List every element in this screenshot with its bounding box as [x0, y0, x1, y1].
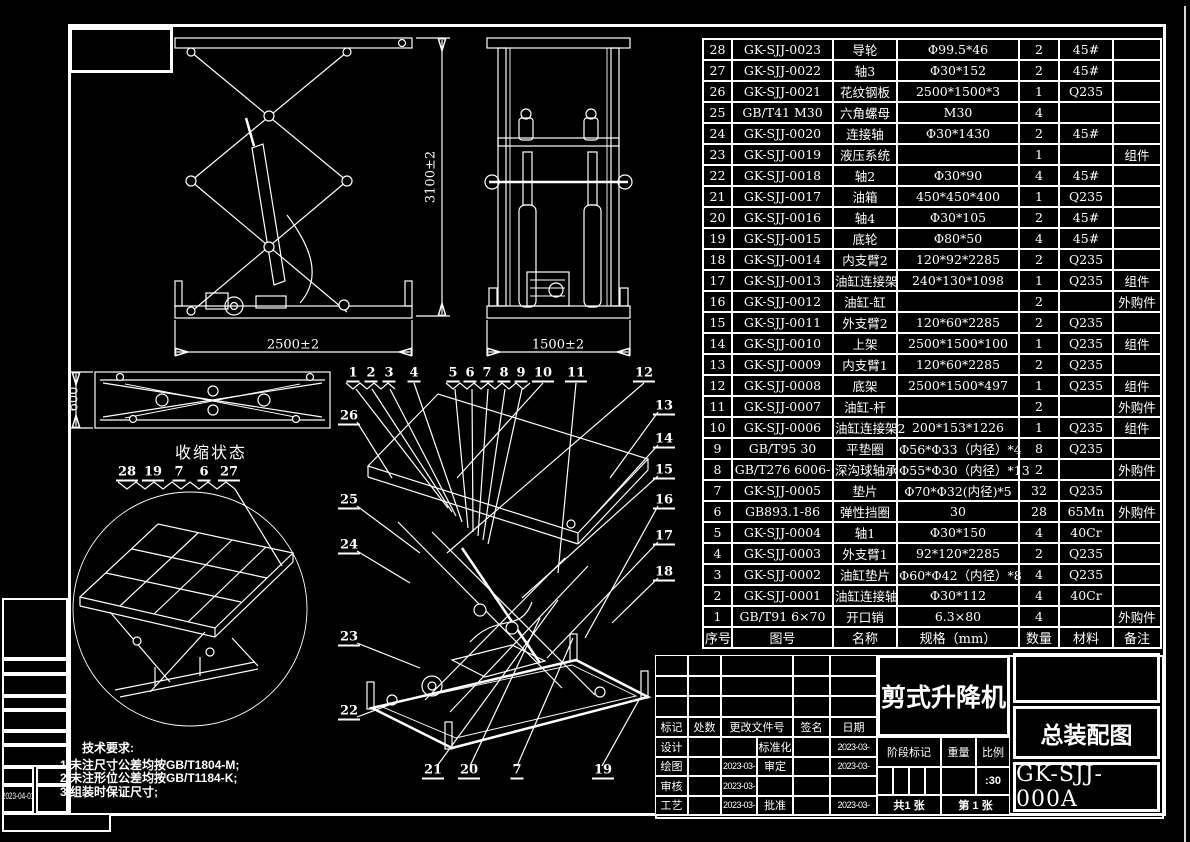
balloon-23: 23 [338, 632, 360, 647]
bom-cell [1113, 228, 1161, 249]
rev-header-count: 处数 [688, 717, 721, 737]
bom-cell: 4 [1019, 585, 1059, 606]
bom-cell [1113, 165, 1161, 186]
bom-header-cell: 图号 [732, 627, 833, 648]
bom-cell: M30 [897, 102, 1019, 123]
bom-cell: GK-SJJ-0001 [732, 585, 833, 606]
bom-cell: 11 [703, 396, 732, 417]
bom-cell: GB/T95 30 [732, 438, 833, 459]
table-row: 9GB/T95 30平垫圈Φ56*Φ33（内径）*48Q235 [703, 438, 1161, 459]
bom-cell: GK-SJJ-0009 [732, 354, 833, 375]
bom-cell: 油箱 [833, 186, 897, 207]
bom-cell: 2 [703, 585, 732, 606]
bom-cell: 4 [1019, 522, 1059, 543]
bom-cell: GK-SJJ-0013 [732, 270, 833, 291]
table-row: 17GK-SJJ-0013油缸连接架240*130*10981Q235组件 [703, 270, 1161, 291]
table-row: 22GK-SJJ-0018轴2Φ30*90445# [703, 165, 1161, 186]
stage-mark-label: 阶段标记 [877, 737, 941, 767]
bom-cell: 2500*1500*100 [897, 333, 1019, 354]
bom-cell: 组件 [1113, 333, 1161, 354]
tech-line: 1.未注尺寸公差均按GB/T1804-M; [60, 759, 310, 773]
bom-cell: 弹性挡圈 [833, 501, 897, 522]
bom-cell: 2 [1019, 249, 1059, 270]
balloon-15: 15 [653, 465, 675, 480]
bom-cell: 1 [1019, 270, 1059, 291]
bom-cell: Φ80*50 [897, 228, 1019, 249]
bom-cell: GK-SJJ-0006 [732, 417, 833, 438]
bom-cell: 45# [1059, 39, 1113, 60]
table-row: 12GK-SJJ-0008底架2500*1500*4971Q235组件 [703, 375, 1161, 396]
doc-type: 总装配图 [1041, 716, 1133, 750]
bom-cell: Φ30*1430 [897, 123, 1019, 144]
bom-cell: 5 [703, 522, 732, 543]
bom-cell: 4 [703, 543, 732, 564]
bom-cell: GK-SJJ-0012 [732, 291, 833, 312]
bom-cell [1059, 102, 1113, 123]
bom-cell: GK-SJJ-0008 [732, 375, 833, 396]
bom-cell: GK-SJJ-0022 [732, 60, 833, 81]
bom-cell: GB/T91 6×70 [732, 606, 833, 627]
stage-label-row: 阶段标记 重量 比例 [877, 737, 1010, 767]
tech-line: 2.未注形位公差均按GB/T1184-K; [60, 772, 310, 786]
bom-cell: GK-SJJ-0005 [732, 480, 833, 501]
bom-cell: 9 [703, 438, 732, 459]
detail-callout-28: 28 [116, 467, 138, 482]
bom-cell: 油缸连接轴 [833, 585, 897, 606]
bom-cell: Q235 [1059, 417, 1113, 438]
scale-label: 比例 [976, 737, 1010, 767]
bom-cell: 40Cr [1059, 522, 1113, 543]
stage-value-row: :30 [877, 767, 1010, 795]
edge-strip-cell [2, 710, 68, 731]
bom-cell: 8 [1019, 438, 1059, 459]
bom-cell: 45# [1059, 123, 1113, 144]
bom-cell: 轴1 [833, 522, 897, 543]
bom-cell: Q235 [1059, 564, 1113, 585]
bom-cell [1113, 522, 1161, 543]
balloon-14: 14 [653, 434, 675, 449]
bom-cell: 轴4 [833, 207, 897, 228]
bom-cell: 内支臂2 [833, 249, 897, 270]
balloon-26: 26 [338, 411, 360, 426]
bom-cell: 底架 [833, 375, 897, 396]
bom-cell: 外购件 [1113, 396, 1161, 417]
edge-strip-cell [2, 696, 68, 710]
bom-header-row: 序号图号名称规格（mm）数量材料备注 [703, 627, 1161, 648]
bom-cell: 花纹钢板 [833, 81, 897, 102]
bom-cell: Q235 [1059, 438, 1113, 459]
detail-callout-6: 6 [197, 467, 210, 482]
bom-cell: 2 [1019, 207, 1059, 228]
detail-callout-27: 27 [218, 467, 240, 482]
bom-cell [897, 291, 1019, 312]
table-row: 18GK-SJJ-0014内支臂2120*92*22852Q235 [703, 249, 1161, 270]
rev-header-docno: 更改文件号 [721, 717, 793, 737]
bom-cell: 14 [703, 333, 732, 354]
bom-cell: Φ55*Φ30（内径）*13 [897, 459, 1019, 480]
balloon-12: 12 [633, 368, 655, 383]
rev-header-date: 日期 [830, 717, 877, 737]
dim-collapsed-height: 600 [67, 387, 82, 412]
bom-cell: 1 [1019, 81, 1059, 102]
bom-cell: Φ30*112 [897, 585, 1019, 606]
detail-callout-7: 7 [172, 467, 185, 482]
bom-cell: 油缸连接架2 [833, 417, 897, 438]
table-row: 13GK-SJJ-0009内支臂1120*60*22852Q235 [703, 354, 1161, 375]
bom-cell: 上架 [833, 333, 897, 354]
bom-cell: 2 [1019, 396, 1059, 417]
bom-cell: 1 [1019, 144, 1059, 165]
bom-cell: Q235 [1059, 375, 1113, 396]
bom-cell [1113, 312, 1161, 333]
bom-cell [1113, 207, 1161, 228]
bom-cell: 45# [1059, 165, 1113, 186]
bom-cell [897, 396, 1019, 417]
bom-header-cell: 数量 [1019, 627, 1059, 648]
bom-cell: 垫片 [833, 480, 897, 501]
bom-cell [1113, 585, 1161, 606]
bom-cell: GK-SJJ-0019 [732, 144, 833, 165]
bom-cell: Q235 [1059, 270, 1113, 291]
bom-cell [1059, 606, 1113, 627]
bom-cell: GK-SJJ-0014 [732, 249, 833, 270]
bom-cell: 组件 [1113, 144, 1161, 165]
dim-front-height: 3100±2 [424, 151, 439, 203]
table-row: 11GK-SJJ-0007油缸-杆2外购件 [703, 396, 1161, 417]
bom-cell: Φ30*150 [897, 522, 1019, 543]
bom-cell: 2 [1019, 354, 1059, 375]
bom-cell: 6.3×80 [897, 606, 1019, 627]
bom-cell [1113, 186, 1161, 207]
bom-cell: Φ70*Φ32(内径)*5 [897, 480, 1019, 501]
bom-cell: Q235 [1059, 543, 1113, 564]
bom-cell: 22 [703, 165, 732, 186]
bom-cell: 轴2 [833, 165, 897, 186]
bom-cell: 19 [703, 228, 732, 249]
dim-side-width: 1500±2 [532, 338, 584, 353]
bom-cell: 200*153*1226 [897, 417, 1019, 438]
bom-header-cell: 规格（mm） [897, 627, 1019, 648]
bom-cell: 23 [703, 144, 732, 165]
balloon-24: 24 [338, 540, 360, 555]
bom-cell: 45# [1059, 228, 1113, 249]
edge-strip-cell [2, 674, 68, 696]
balloon-20: 20 [458, 765, 480, 780]
bom-cell: 组件 [1113, 417, 1161, 438]
sheet-count-row: 共1 张 第 1 张 [877, 795, 1010, 815]
balloon-9: 9 [514, 368, 527, 383]
bom-cell: 1 [1019, 375, 1059, 396]
table-row: 8GB/T276 6006-深沟球轴承Φ55*Φ30（内径）*132外购件 [703, 459, 1161, 480]
bom-cell: Φ30*152 [897, 60, 1019, 81]
role-design: 设计 [655, 737, 688, 757]
bom-cell: 2 [1019, 60, 1059, 81]
role-draw: 绘图 [655, 757, 688, 777]
bom-cell: GK-SJJ-0010 [732, 333, 833, 354]
bom-cell [1113, 354, 1161, 375]
bom-cell: 2 [1019, 123, 1059, 144]
balloon-1: 1 [346, 368, 359, 383]
bom-cell: 底轮 [833, 228, 897, 249]
bom-cell: Φ30*105 [897, 207, 1019, 228]
bom-cell [1059, 291, 1113, 312]
bom-cell: GK-SJJ-0003 [732, 543, 833, 564]
role-process: 工艺 [655, 796, 688, 816]
role-ratify: 批准 [757, 796, 793, 816]
bom-cell: GK-SJJ-0004 [732, 522, 833, 543]
bom-table: 28GK-SJJ-0023导轮Φ99.5*46245#27GK-SJJ-0022… [702, 38, 1162, 649]
bom-cell: Φ56*Φ33（内径）*4 [897, 438, 1019, 459]
bom-cell: 4 [1019, 606, 1059, 627]
table-row: 15GK-SJJ-0011外支臂2120*60*22852Q235 [703, 312, 1161, 333]
bom-cell: Q235 [1059, 333, 1113, 354]
bom-header-cell: 备注 [1113, 627, 1161, 648]
bom-cell: 2 [1019, 291, 1059, 312]
bom-header-cell: 名称 [833, 627, 897, 648]
rev-header-mark: 标记 [655, 717, 688, 737]
bom-cell: 1 [703, 606, 732, 627]
signature-grid: 设计 标准化 2023-03- 绘图 2023-03- 审定 2023-03- … [655, 737, 877, 815]
collapsed-state-label: 收缩状态 [175, 439, 247, 463]
table-row: 20GK-SJJ-0016轴4Φ30*105245# [703, 207, 1161, 228]
role-standardization: 标准化 [757, 737, 793, 757]
bom-cell: 外购件 [1113, 459, 1161, 480]
bom-cell: Q235 [1059, 312, 1113, 333]
table-row: 10GK-SJJ-0006油缸连接架2200*153*12261Q235组件 [703, 417, 1161, 438]
bom-header-cell: 材料 [1059, 627, 1113, 648]
table-row: 6GB893.1-86弹性挡圈302865Mn外购件 [703, 501, 1161, 522]
bom-cell: 平垫圈 [833, 438, 897, 459]
bom-cell: 外购件 [1113, 606, 1161, 627]
bom-cell: 65Mn [1059, 501, 1113, 522]
bom-cell: 21 [703, 186, 732, 207]
bom-cell: 2 [1019, 543, 1059, 564]
bom-cell: 2500*1500*3 [897, 81, 1019, 102]
bom-cell: 18 [703, 249, 732, 270]
product-title: 剪式升降机 [881, 678, 1006, 714]
bom-cell: 油缸-杆 [833, 396, 897, 417]
bom-cell: 油缸连接架 [833, 270, 897, 291]
tech-title: 技术要求: [82, 742, 310, 756]
bom-cell: 3 [703, 564, 732, 585]
bom-cell: GK-SJJ-0002 [732, 564, 833, 585]
balloon-18: 18 [653, 567, 675, 582]
bom-cell: 导轮 [833, 39, 897, 60]
role-review: 审核 [655, 776, 688, 796]
bom-cell [1113, 480, 1161, 501]
bom-cell: GK-SJJ-0016 [732, 207, 833, 228]
bom-cell [1113, 81, 1161, 102]
bom-cell: 外支臂2 [833, 312, 897, 333]
bom-cell [1113, 543, 1161, 564]
sheet-total: 共1 张 [877, 795, 941, 815]
bom-cell: 2 [1019, 312, 1059, 333]
bom-cell: 4 [1019, 564, 1059, 585]
window-edge-line [1184, 6, 1186, 842]
bom-cell: 4 [1019, 102, 1059, 123]
bom-cell: 2500*1500*497 [897, 375, 1019, 396]
table-row: 21GK-SJJ-0017油箱450*450*4001Q235 [703, 186, 1161, 207]
bom-cell: Q235 [1059, 354, 1113, 375]
bom-cell: 1 [1019, 417, 1059, 438]
bom-cell: GB893.1-86 [732, 501, 833, 522]
blank-box [1013, 653, 1160, 703]
detail-callout-19: 19 [142, 467, 164, 482]
tech-line: 3.组装时保证尺寸; [60, 786, 310, 800]
bom-cell: Q235 [1059, 81, 1113, 102]
bom-cell [1059, 459, 1113, 480]
bom-cell: 92*120*2285 [897, 543, 1019, 564]
bom-cell: 45# [1059, 60, 1113, 81]
bom-cell: 40Cr [1059, 585, 1113, 606]
bom-cell: 20 [703, 207, 732, 228]
bom-cell: GK-SJJ-0017 [732, 186, 833, 207]
balloon-16: 16 [653, 495, 675, 510]
bom-cell [1113, 123, 1161, 144]
bom-cell: 32 [1019, 480, 1059, 501]
bom-cell: 16 [703, 291, 732, 312]
doc-type-box: 总装配图 [1013, 706, 1160, 759]
bom-cell: 30 [897, 501, 1019, 522]
bom-cell: 450*450*400 [897, 186, 1019, 207]
bom-cell: 组件 [1113, 270, 1161, 291]
bom-cell: Q235 [1059, 249, 1113, 270]
bom-cell: 13 [703, 354, 732, 375]
balloon-11: 11 [565, 368, 587, 383]
bom-cell: 12 [703, 375, 732, 396]
bom-cell: 连接轴 [833, 123, 897, 144]
revision-header-row: 标记 处数 更改文件号 签名 日期 [655, 717, 877, 737]
bom-cell: 组件 [1113, 375, 1161, 396]
table-row: 28GK-SJJ-0023导轮Φ99.5*46245# [703, 39, 1161, 60]
bom-cell: GB/T41 M30 [732, 102, 833, 123]
table-row: 2GK-SJJ-0001油缸连接轴Φ30*112440Cr [703, 585, 1161, 606]
bom-cell: Φ60*Φ42（内径）*8 [897, 564, 1019, 585]
revision-empty-grid [655, 655, 877, 717]
bom-cell: 深沟球轴承 [833, 459, 897, 480]
balloon-7: 7 [510, 765, 523, 780]
bom-cell: 2 [1019, 39, 1059, 60]
bom-cell [1113, 39, 1161, 60]
bom-cell: GK-SJJ-0015 [732, 228, 833, 249]
bom-cell: 内支臂1 [833, 354, 897, 375]
balloon-6: 6 [463, 368, 476, 383]
balloon-3: 3 [382, 368, 395, 383]
table-row: 23GK-SJJ-0019液压系统1组件 [703, 144, 1161, 165]
scale-value: :30 [976, 767, 1010, 795]
bom-cell [1059, 396, 1113, 417]
bom-cell: GK-SJJ-0018 [732, 165, 833, 186]
sheet-corner-box [69, 27, 173, 73]
bom-cell: Q235 [1059, 480, 1113, 501]
bom-cell: GK-SJJ-0007 [732, 396, 833, 417]
bom-cell: 17 [703, 270, 732, 291]
bom-cell: 外购件 [1113, 291, 1161, 312]
bom-cell: 外支臂1 [833, 543, 897, 564]
table-row: 5GK-SJJ-0004轴1Φ30*150440Cr [703, 522, 1161, 543]
bom-cell: 27 [703, 60, 732, 81]
edge-strip-cell [2, 767, 34, 785]
bom-cell: 4 [1019, 165, 1059, 186]
bom-cell: 轴3 [833, 60, 897, 81]
bom-cell: 24 [703, 123, 732, 144]
balloon-8: 8 [497, 368, 510, 383]
bom-cell: 4 [1019, 228, 1059, 249]
balloon-4: 4 [407, 368, 420, 383]
bom-cell: Φ30*90 [897, 165, 1019, 186]
dim-front-width: 2500±2 [267, 338, 319, 353]
edge-strip-cell [2, 598, 68, 659]
bom-cell [1113, 60, 1161, 81]
bom-header-cell: 序号 [703, 627, 732, 648]
balloon-2: 2 [364, 368, 377, 383]
bom-cell: 1 [1019, 186, 1059, 207]
bom-cell: 120*60*2285 [897, 312, 1019, 333]
table-row: 3GK-SJJ-0002油缸垫片Φ60*Φ42（内径）*84Q235 [703, 564, 1161, 585]
sheet-number: 第 1 张 [941, 795, 1010, 815]
table-row: 1GB/T91 6×70开口销6.3×804外购件 [703, 606, 1161, 627]
bom-cell: 26 [703, 81, 732, 102]
bom-cell: 1 [1019, 333, 1059, 354]
balloon-19: 19 [592, 765, 614, 780]
bom-cell [1113, 564, 1161, 585]
bom-cell: GB/T276 6006- [732, 459, 833, 480]
bom-cell: 28 [703, 39, 732, 60]
bom-cell: 120*92*2285 [897, 249, 1019, 270]
bom-cell: GK-SJJ-0021 [732, 81, 833, 102]
bom-cell: GK-SJJ-0011 [732, 312, 833, 333]
bom-cell: 外购件 [1113, 501, 1161, 522]
bom-cell: GK-SJJ-0020 [732, 123, 833, 144]
table-row: 19GK-SJJ-0015底轮Φ80*50445# [703, 228, 1161, 249]
bom-cell: 6 [703, 501, 732, 522]
drawing-number-box: GK-SJJ-000A [1013, 762, 1160, 812]
bom-cell [897, 144, 1019, 165]
table-row: 14GK-SJJ-0010上架2500*1500*1001Q235组件 [703, 333, 1161, 354]
edge-strip-cell [2, 813, 111, 832]
bom-cell: Q235 [1059, 186, 1113, 207]
cad-drawing-canvas: 2023-04-01 28GK-SJJ-0023导轮Φ99.5*46245#27… [0, 0, 1190, 842]
bom-cell: Φ99.5*46 [897, 39, 1019, 60]
bom-cell: 15 [703, 312, 732, 333]
balloon-25: 25 [338, 495, 360, 510]
bom-cell: 120*60*2285 [897, 354, 1019, 375]
table-row: 27GK-SJJ-0022轴3Φ30*152245# [703, 60, 1161, 81]
bom-cell: 六角螺母 [833, 102, 897, 123]
technical-requirements: 技术要求: 1.未注尺寸公差均按GB/T1804-M; 2.未注形位公差均按GB… [60, 742, 310, 799]
balloon-17: 17 [653, 531, 675, 546]
bom-cell: GK-SJJ-0023 [732, 39, 833, 60]
table-row: 7GK-SJJ-0005垫片Φ70*Φ32(内径)*532Q235 [703, 480, 1161, 501]
edge-strip-cell [2, 659, 68, 674]
table-row: 16GK-SJJ-0012油缸-缸2外购件 [703, 291, 1161, 312]
balloon-10: 10 [532, 368, 554, 383]
bom-cell [1113, 249, 1161, 270]
role-approve-check: 审定 [757, 757, 793, 777]
edge-strip-cell [2, 731, 68, 745]
bom-cell: 45# [1059, 207, 1113, 228]
bom-cell: 油缸-缸 [833, 291, 897, 312]
bom-cell: 8 [703, 459, 732, 480]
balloon-7: 7 [480, 368, 493, 383]
bom-cell: 7 [703, 480, 732, 501]
bom-cell [1113, 102, 1161, 123]
table-row: 25GB/T41 M30六角螺母M304 [703, 102, 1161, 123]
drawing-number: GK-SJJ-000A [1016, 762, 1157, 812]
plot-date-stamp: 2023-04-01 [2, 791, 34, 801]
product-title-box: 剪式升降机 [877, 655, 1010, 737]
table-row: 26GK-SJJ-0021花纹钢板2500*1500*31Q235 [703, 81, 1161, 102]
